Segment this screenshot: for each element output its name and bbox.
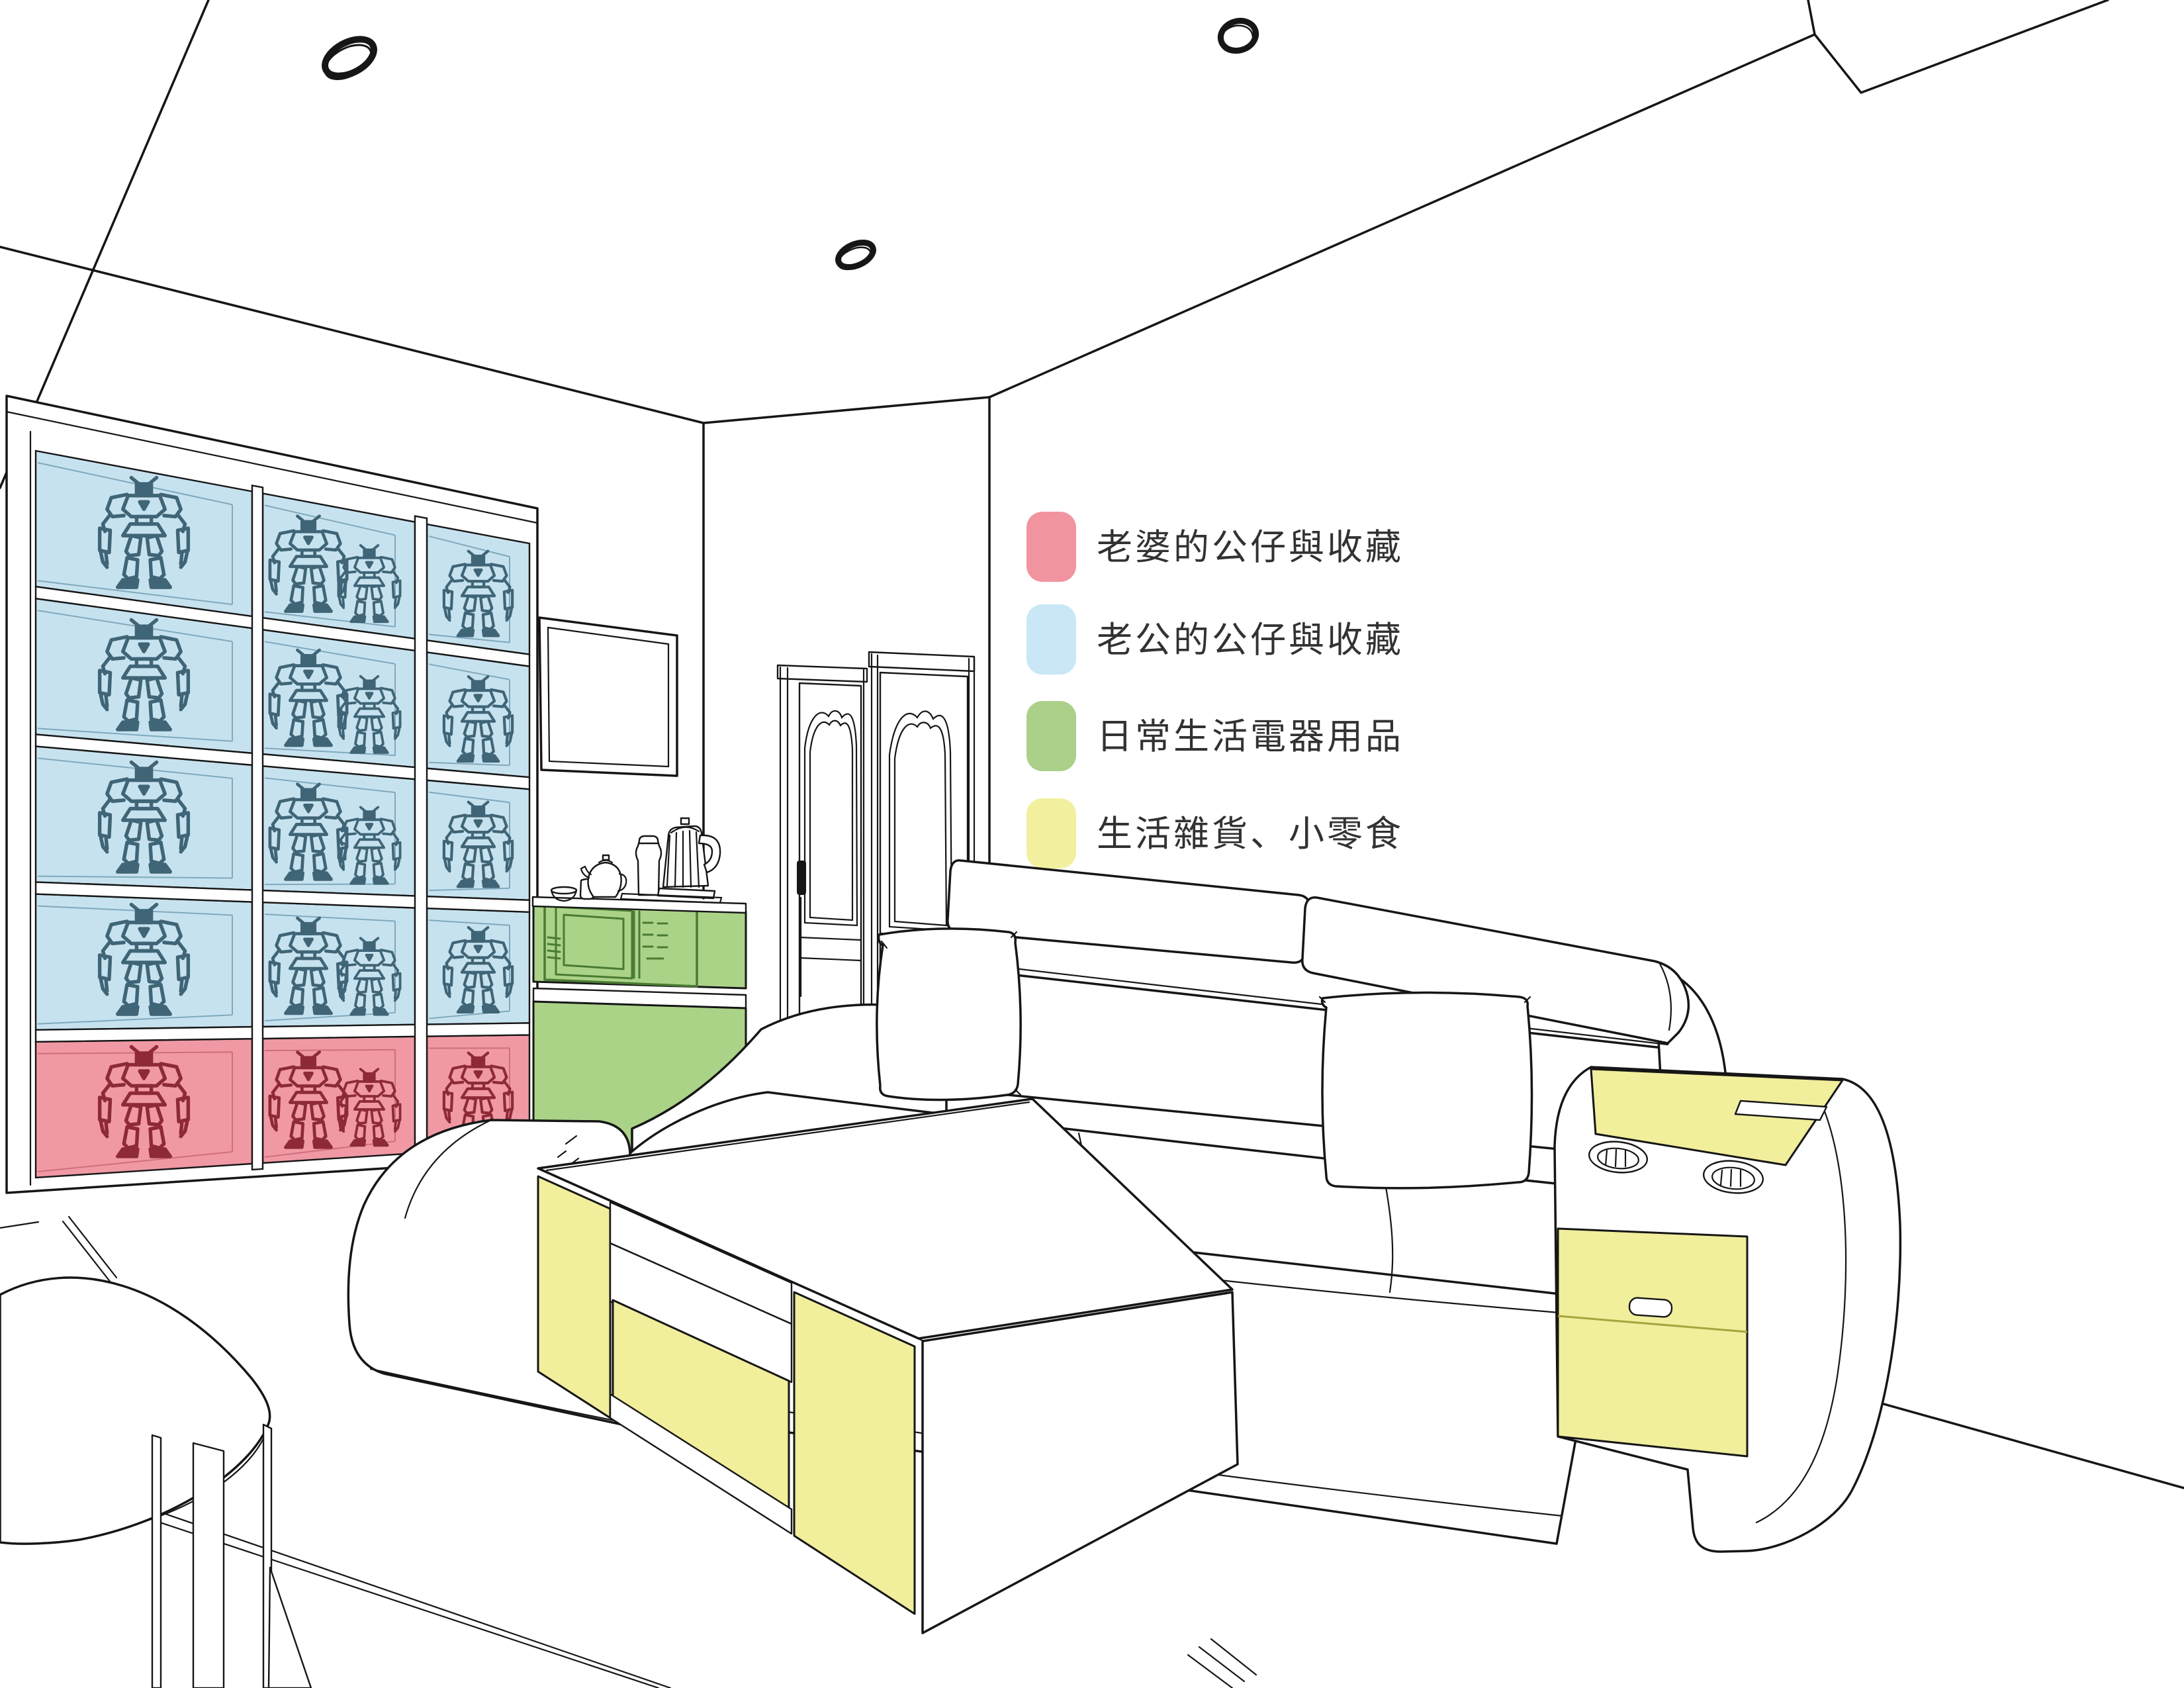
rendering-canvas: 老婆的公仔與收藏 老公的公仔與收藏 日常生活電器用品 生活雜貨、小零食 [0,0,2184,1688]
oval-table-top [0,1278,270,1544]
electric-kettle [658,818,720,898]
legend-label-husband: 老公的公仔與收藏 [1097,619,1404,661]
door-left [778,665,867,1029]
right-wall-top-edge [989,0,2108,397]
sofa-pillow-right [1322,992,1532,1188]
floor-detail-line [63,1217,116,1282]
legend-label-wife: 老婆的公仔與收藏 [1097,526,1404,568]
legend-swatch-husband [1026,604,1076,675]
shelf-divider [415,516,427,1160]
shelf-cells [36,451,529,1178]
shelf-divider [252,485,263,1170]
back-wall-top-edge [704,397,989,423]
microwave [545,902,697,986]
oval-table [0,1278,311,1688]
legend-label-appliance: 日常生活電器用品 [1097,716,1404,757]
counter-items [551,818,721,903]
console-drawer [1558,1229,1747,1456]
door-handle [797,861,806,895]
wall-floor-line-right [1848,1394,2184,1488]
left-wall-top-edge [0,247,704,423]
shelf-cell [427,652,529,777]
rug-right-corner [1188,1639,1256,1688]
oval-table-foot [269,1568,311,1688]
wall-floor-line-left [0,1222,38,1228]
table-end-face [923,1292,1238,1633]
canister [636,836,661,895]
console-drawer-handle [1629,1297,1672,1317]
legend-swatch-sundries [1026,798,1076,868]
sofa-pillow-left [877,929,1021,1100]
shelf-cell [427,524,529,655]
side-console [1555,1067,1900,1552]
legend: 老婆的公仔與收藏 老公的公仔與收藏 日常生活電器用品 生活雜貨、小零食 [1026,512,1404,868]
ceiling-light-icon [1216,17,1260,57]
display-shelf [7,396,537,1193]
picture-frame [539,618,677,776]
legend-swatch-appliance [1026,701,1076,771]
table-right-door [794,1292,915,1614]
legend-swatch-wife [1026,512,1076,582]
shelf-cell [427,908,529,1024]
ceiling-light-icon [833,238,878,274]
living-room-rendering: 老婆的公仔與收藏 老公的公仔與收藏 日常生活電器用品 生活雜貨、小零食 [0,0,2184,1688]
rug-left-edge [154,1513,670,1688]
ceiling-light-icon [317,32,381,86]
legend-label-sundries: 生活雜貨、小零食 [1097,813,1404,855]
